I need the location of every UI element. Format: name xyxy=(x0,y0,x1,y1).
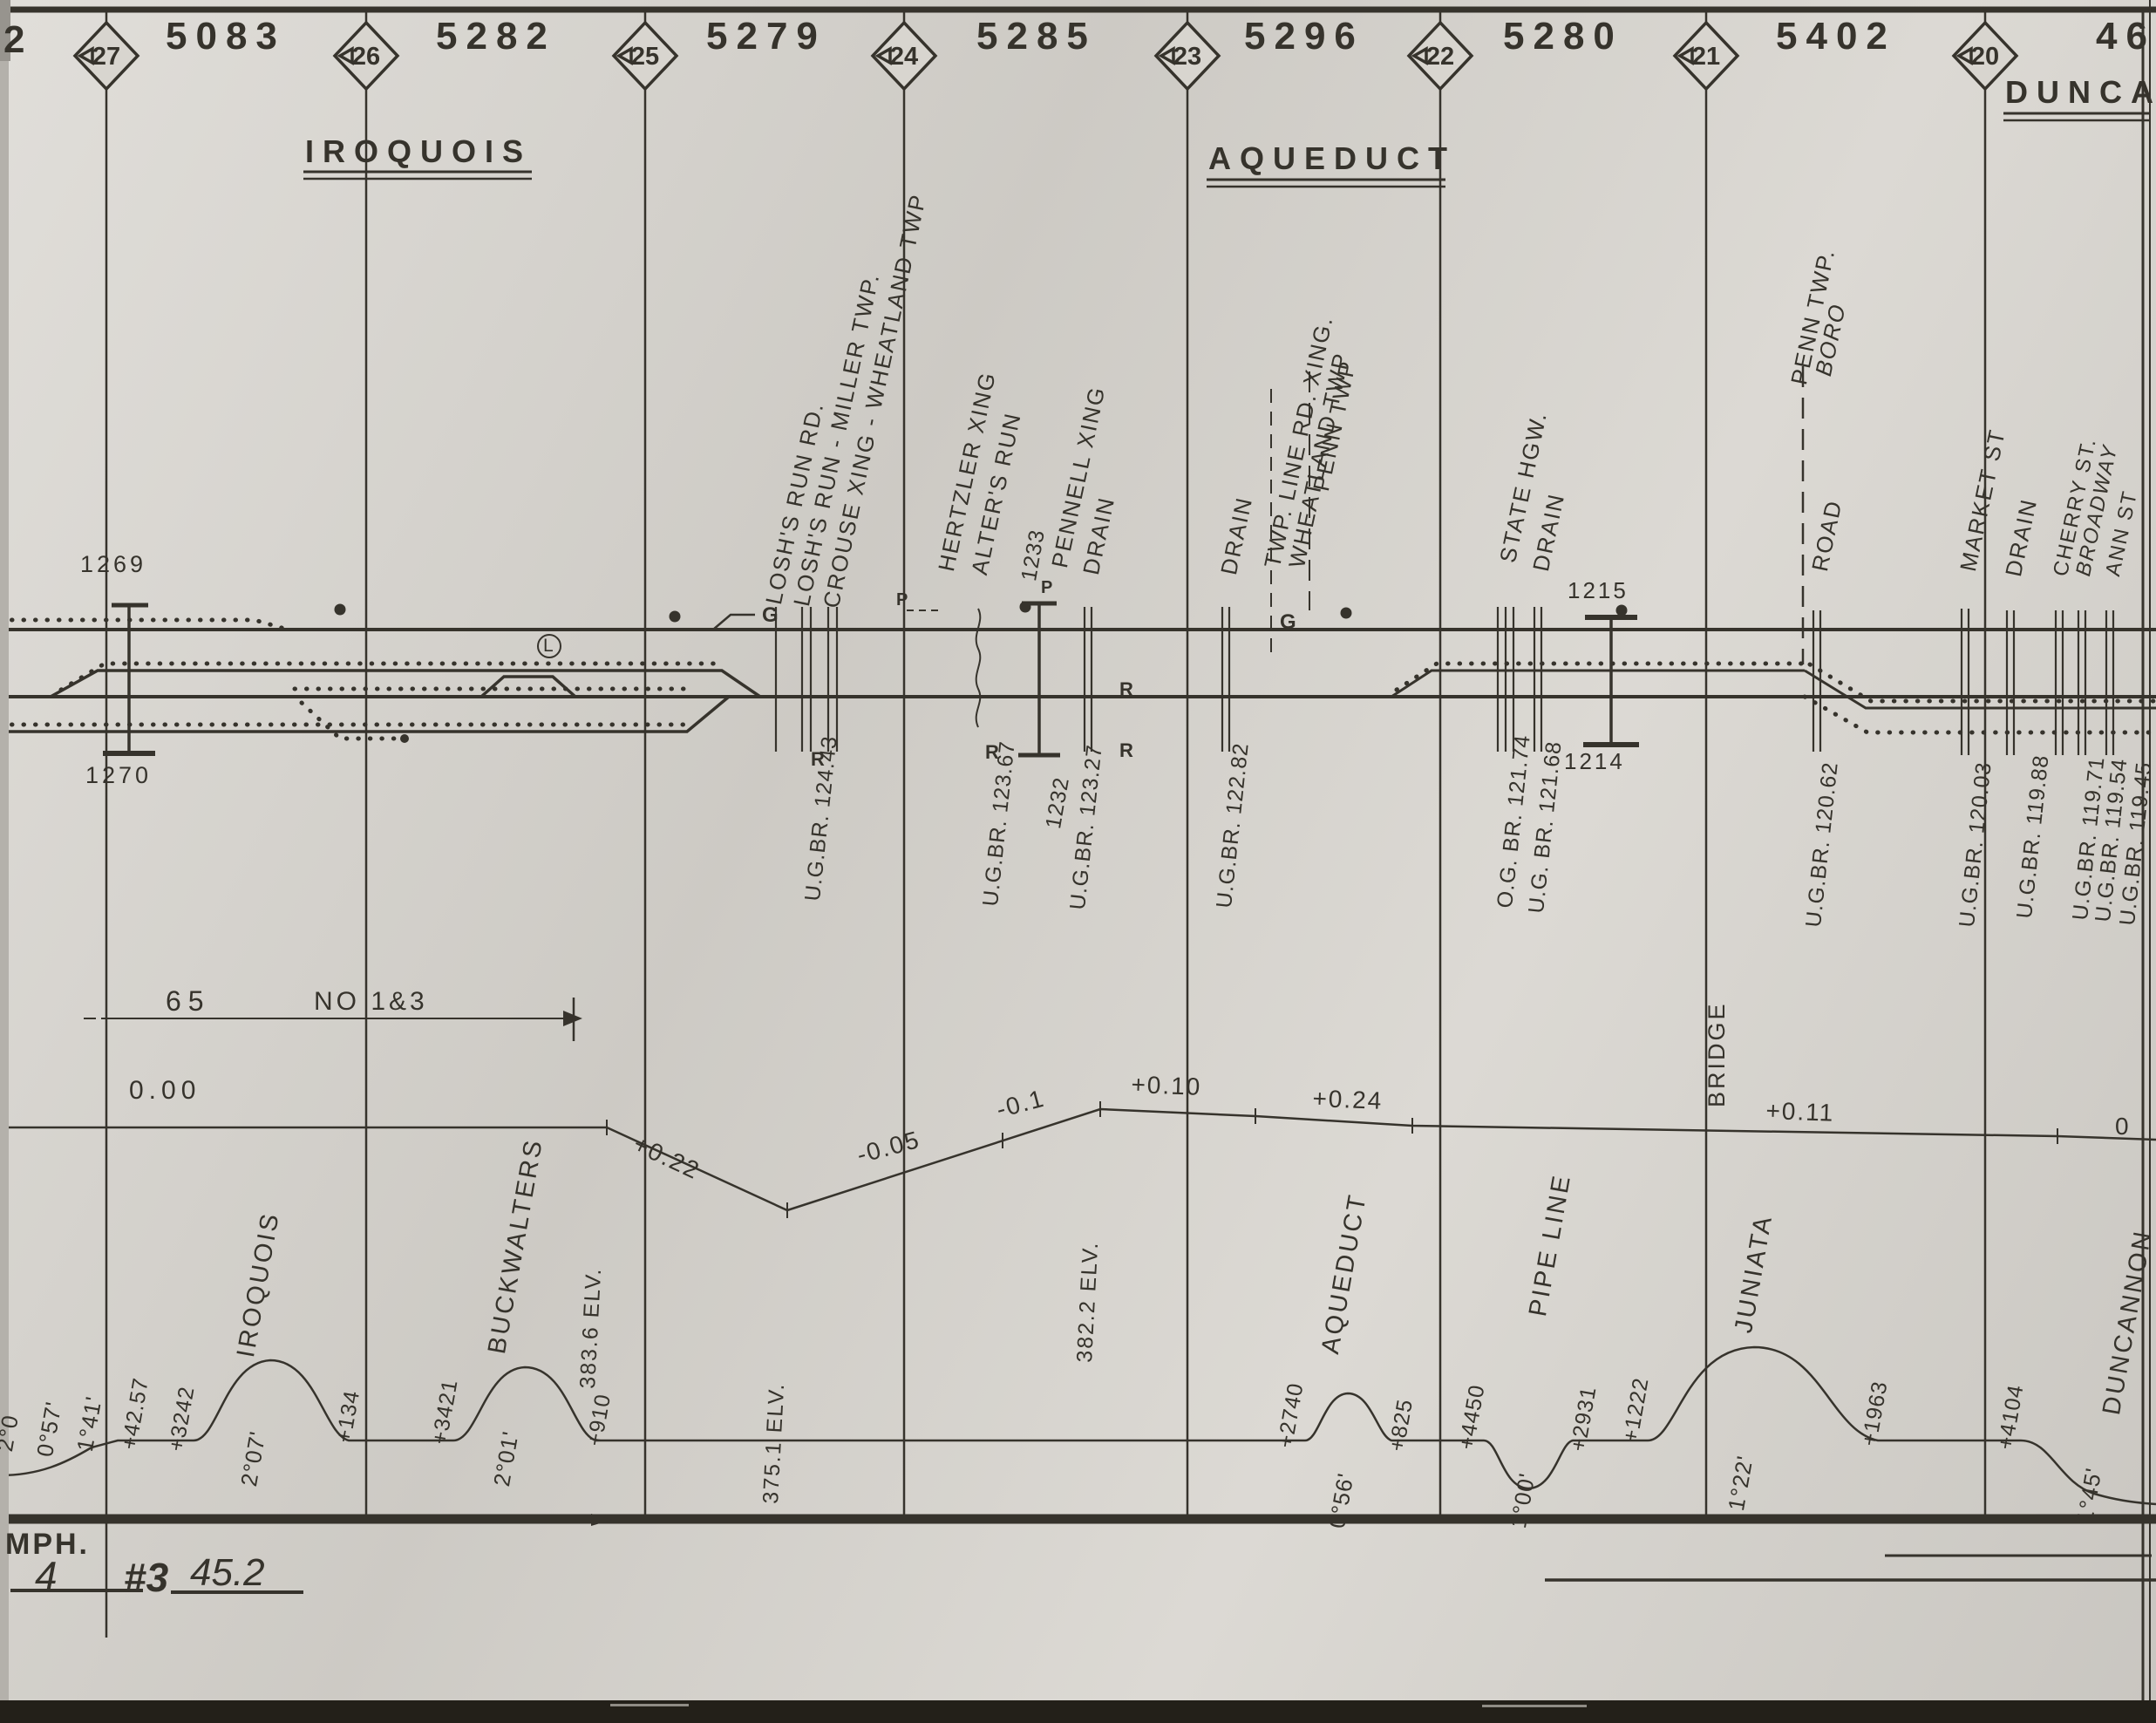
r-signal-marker: R xyxy=(1119,741,1133,760)
dimension-note-tracks: NO 1&3 xyxy=(314,989,428,1015)
p-marker: P xyxy=(896,591,908,609)
milepost-number: 26 xyxy=(347,43,385,72)
grade-label: +0.11 xyxy=(1765,1099,1835,1126)
grade-label: +0.24 xyxy=(1312,1086,1384,1113)
track-schematic xyxy=(0,615,2156,743)
hand-note-number: #3 xyxy=(124,1557,168,1597)
section-number: 5402 xyxy=(1776,17,1896,56)
gate-marker: G xyxy=(762,605,779,626)
p-marker: P xyxy=(1041,579,1052,596)
bridge-number-1270: 1270 xyxy=(85,764,152,787)
milepost-number: 21 xyxy=(1687,43,1725,72)
section-number: 5282 xyxy=(436,17,556,56)
circled-l-label: L xyxy=(543,637,554,655)
section-number: 46 xyxy=(2096,17,2156,56)
grade-label-flat: 0.00 xyxy=(129,1078,201,1104)
milepost-number: 27 xyxy=(87,43,126,72)
station-name-duncannon: DUNCA xyxy=(2005,77,2156,108)
section-number: 5280 xyxy=(1503,17,1623,56)
base-lines xyxy=(0,1514,2156,1592)
dimension-note-65: 65 xyxy=(166,987,211,1015)
bridge-number-1269: 1269 xyxy=(80,553,146,576)
hand-note-track: 4 xyxy=(35,1556,58,1596)
station-name-iroquois: IROQUOIS xyxy=(305,136,532,167)
grade-label-end: 0 xyxy=(2115,1114,2131,1139)
hand-note-speed: 45.2 xyxy=(190,1554,265,1592)
track-chart-sheet: 2 5083 5282 5279 5285 5296 5280 5402 46 … xyxy=(0,0,2156,1723)
grade-label: +0.10 xyxy=(1131,1073,1202,1100)
r-signal-marker: R xyxy=(1119,680,1133,699)
milepost-number: 22 xyxy=(1421,43,1459,72)
section-number: 5285 xyxy=(976,17,1097,56)
section-number: 5083 xyxy=(166,17,286,56)
bridge-number-1215: 1215 xyxy=(1568,579,1629,602)
milepost-number: 20 xyxy=(1966,43,2004,72)
milepost-number: 25 xyxy=(626,43,664,72)
milepost-number: 23 xyxy=(1168,43,1207,72)
section-number: 5296 xyxy=(1244,17,1364,56)
milepost-number: 24 xyxy=(885,43,923,72)
section-number: 5279 xyxy=(706,17,826,56)
station-name-aqueduct: AQUEDUCT xyxy=(1208,143,1456,174)
bridge-number-1214: 1214 xyxy=(1564,750,1625,773)
left-edge-number: 2 xyxy=(3,21,33,59)
gate-marker: G xyxy=(1280,612,1296,633)
bridge-note-label: BRIDGE xyxy=(1705,1001,1729,1107)
curve-diagram xyxy=(0,1347,2156,1504)
